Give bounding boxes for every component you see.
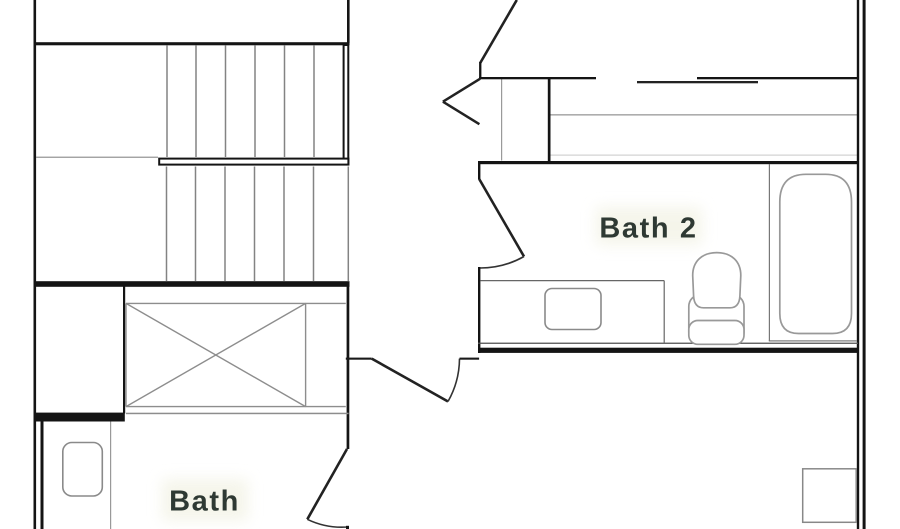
svg-text:Bath 2: Bath 2 [599,213,697,245]
svg-text:Bath: Bath [169,486,240,518]
